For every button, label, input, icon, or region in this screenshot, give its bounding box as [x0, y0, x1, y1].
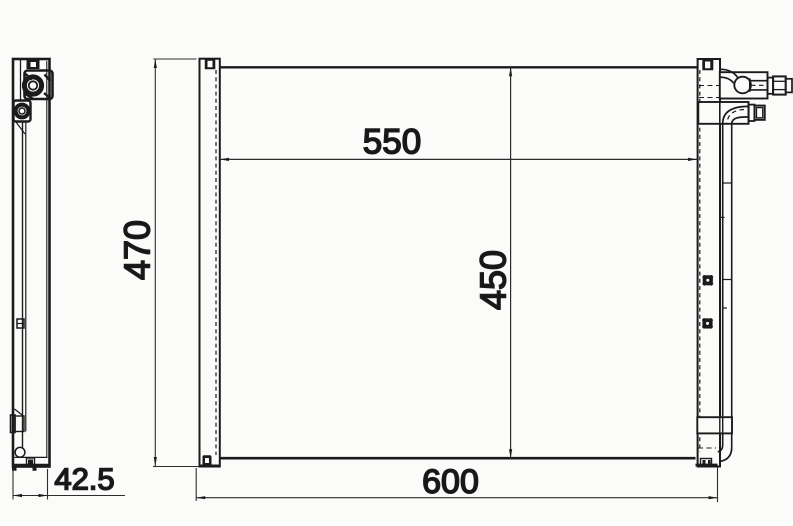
svg-text:470: 470: [117, 220, 158, 280]
svg-text:450: 450: [473, 250, 514, 310]
svg-text:42.5: 42.5: [54, 462, 114, 497]
svg-text:600: 600: [422, 463, 479, 501]
svg-text:550: 550: [363, 123, 421, 162]
